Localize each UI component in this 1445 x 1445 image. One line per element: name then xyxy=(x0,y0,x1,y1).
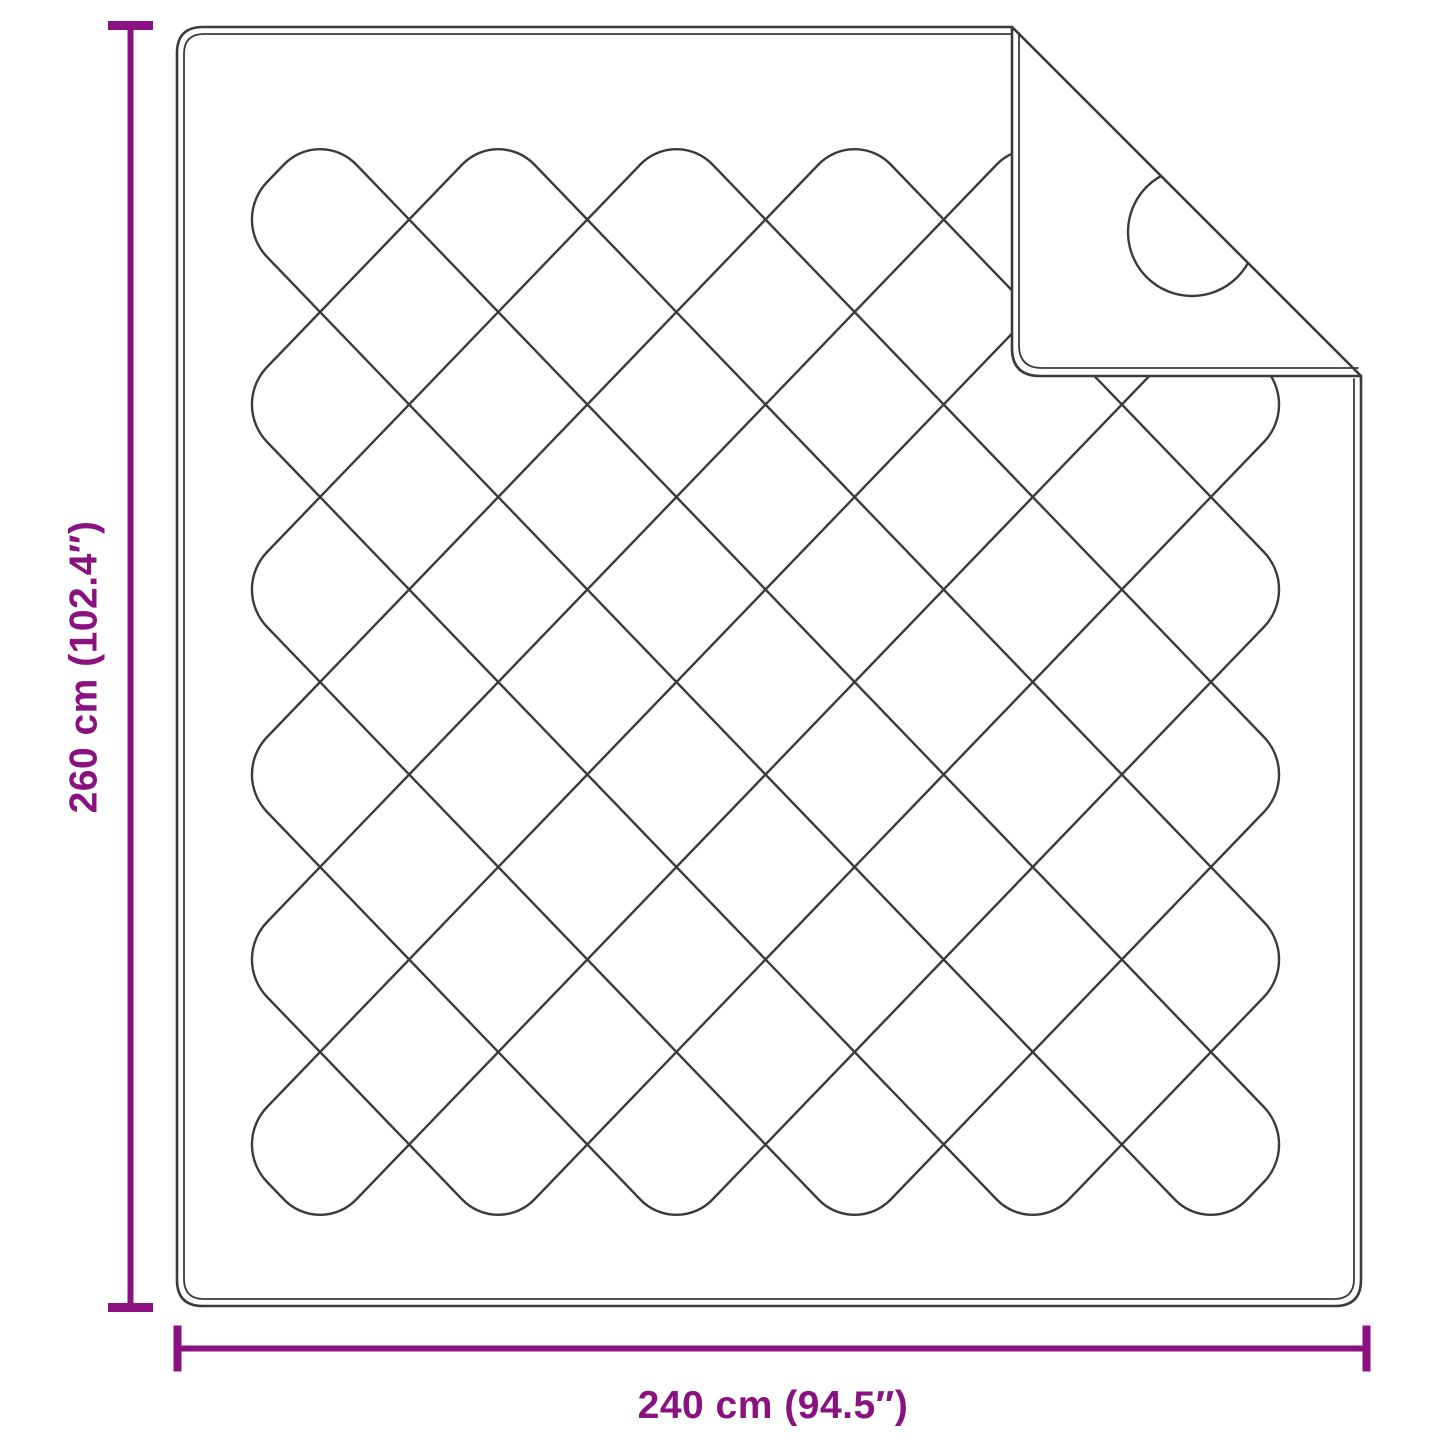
width-dimension xyxy=(178,1326,1367,1372)
width-dimension-label: 240 cm (94.5″) xyxy=(638,1384,909,1427)
folded-corner-flap xyxy=(1012,27,1361,376)
height-dimension-label: 260 cm (102.4″) xyxy=(63,521,106,814)
blanket-dimension-diagram: 260 cm (102.4″) 240 cm (94.5″) xyxy=(0,0,1445,1445)
diagram-stage: 260 cm (102.4″) 240 cm (94.5″) xyxy=(0,0,1445,1445)
height-dimension xyxy=(108,26,153,1308)
